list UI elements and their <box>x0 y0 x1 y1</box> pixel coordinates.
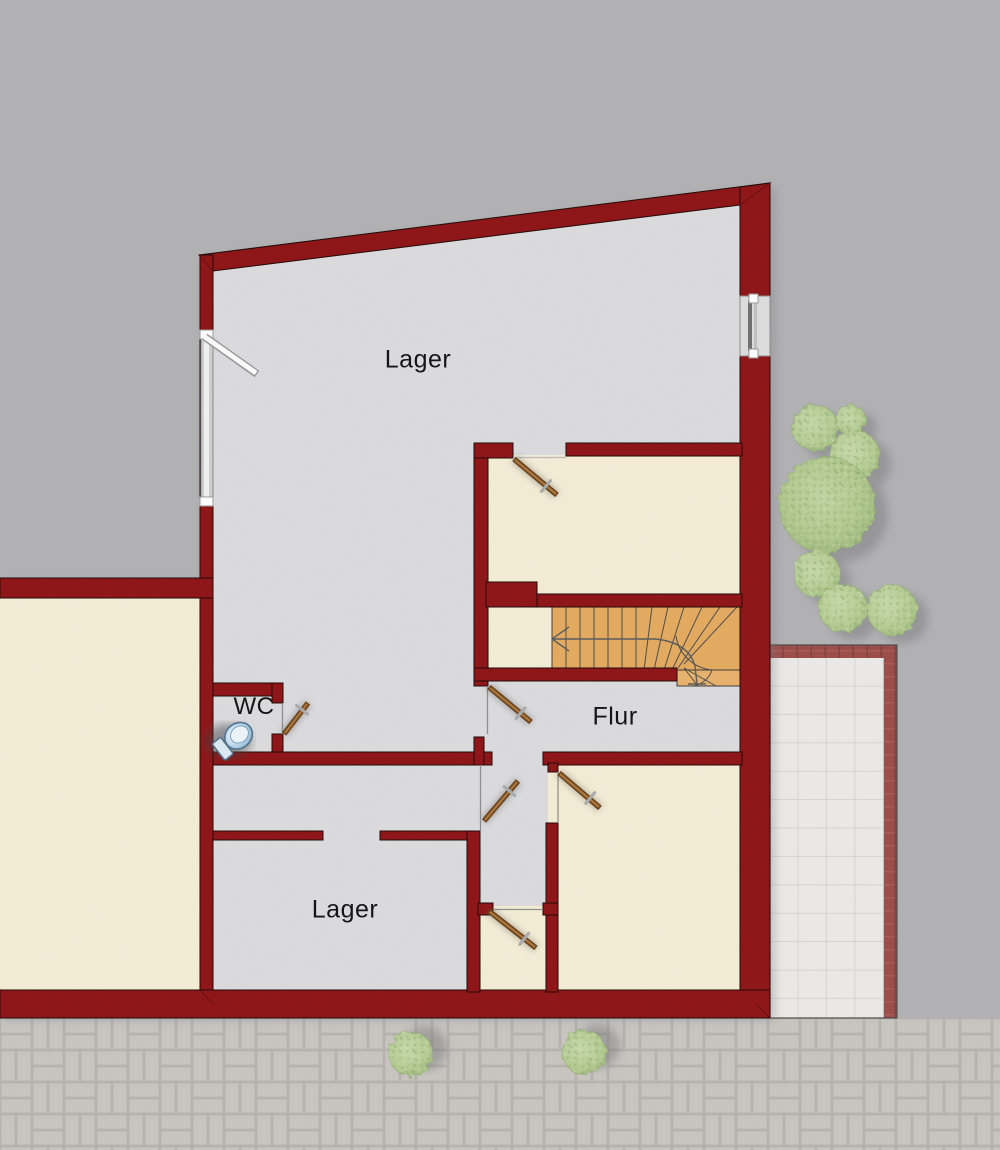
floor-plan: Lager WC Flur Lager <box>0 0 1000 1150</box>
floor-plan-drawing <box>0 0 1000 1150</box>
grain-overlay <box>0 0 1000 1150</box>
